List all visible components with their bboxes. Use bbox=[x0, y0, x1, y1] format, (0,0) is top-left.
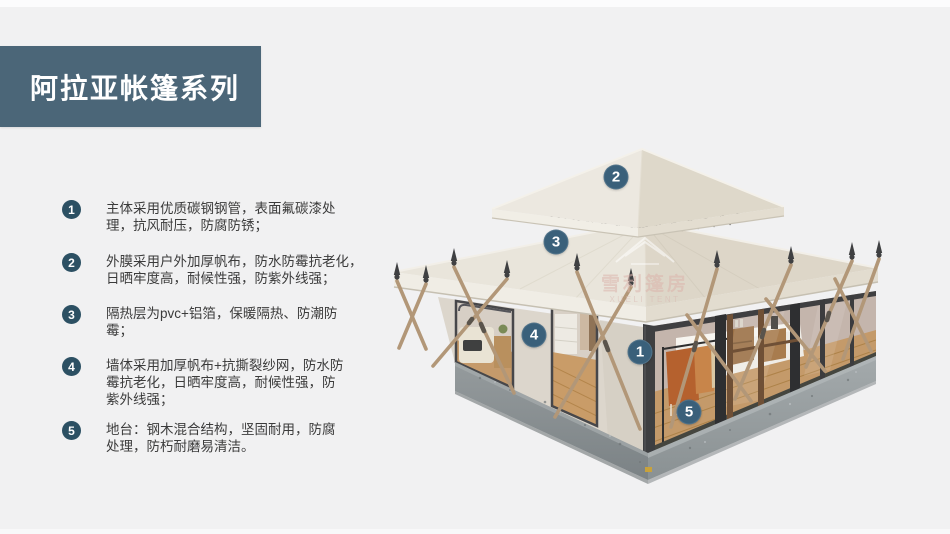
watermark-en: XUELI TENT bbox=[609, 295, 680, 304]
door-post bbox=[715, 314, 726, 428]
tent-illustration: 雪利篷房 XUELI TENT bbox=[0, 0, 950, 534]
marker-5: 5 bbox=[677, 400, 702, 425]
top-roof bbox=[492, 149, 784, 237]
watermark-cn: 雪利篷房 bbox=[601, 272, 689, 295]
slide: 阿拉亚帐篷系列 1 主体采用优质碳钢钢管，表面氟碳漆处 理，抗风耐压，防腐防锈；… bbox=[0, 0, 950, 534]
marker-2: 2 bbox=[604, 165, 629, 190]
marker-1: 1 bbox=[628, 340, 653, 365]
marker-4: 4 bbox=[522, 323, 547, 348]
marker-3: 3 bbox=[544, 230, 569, 255]
